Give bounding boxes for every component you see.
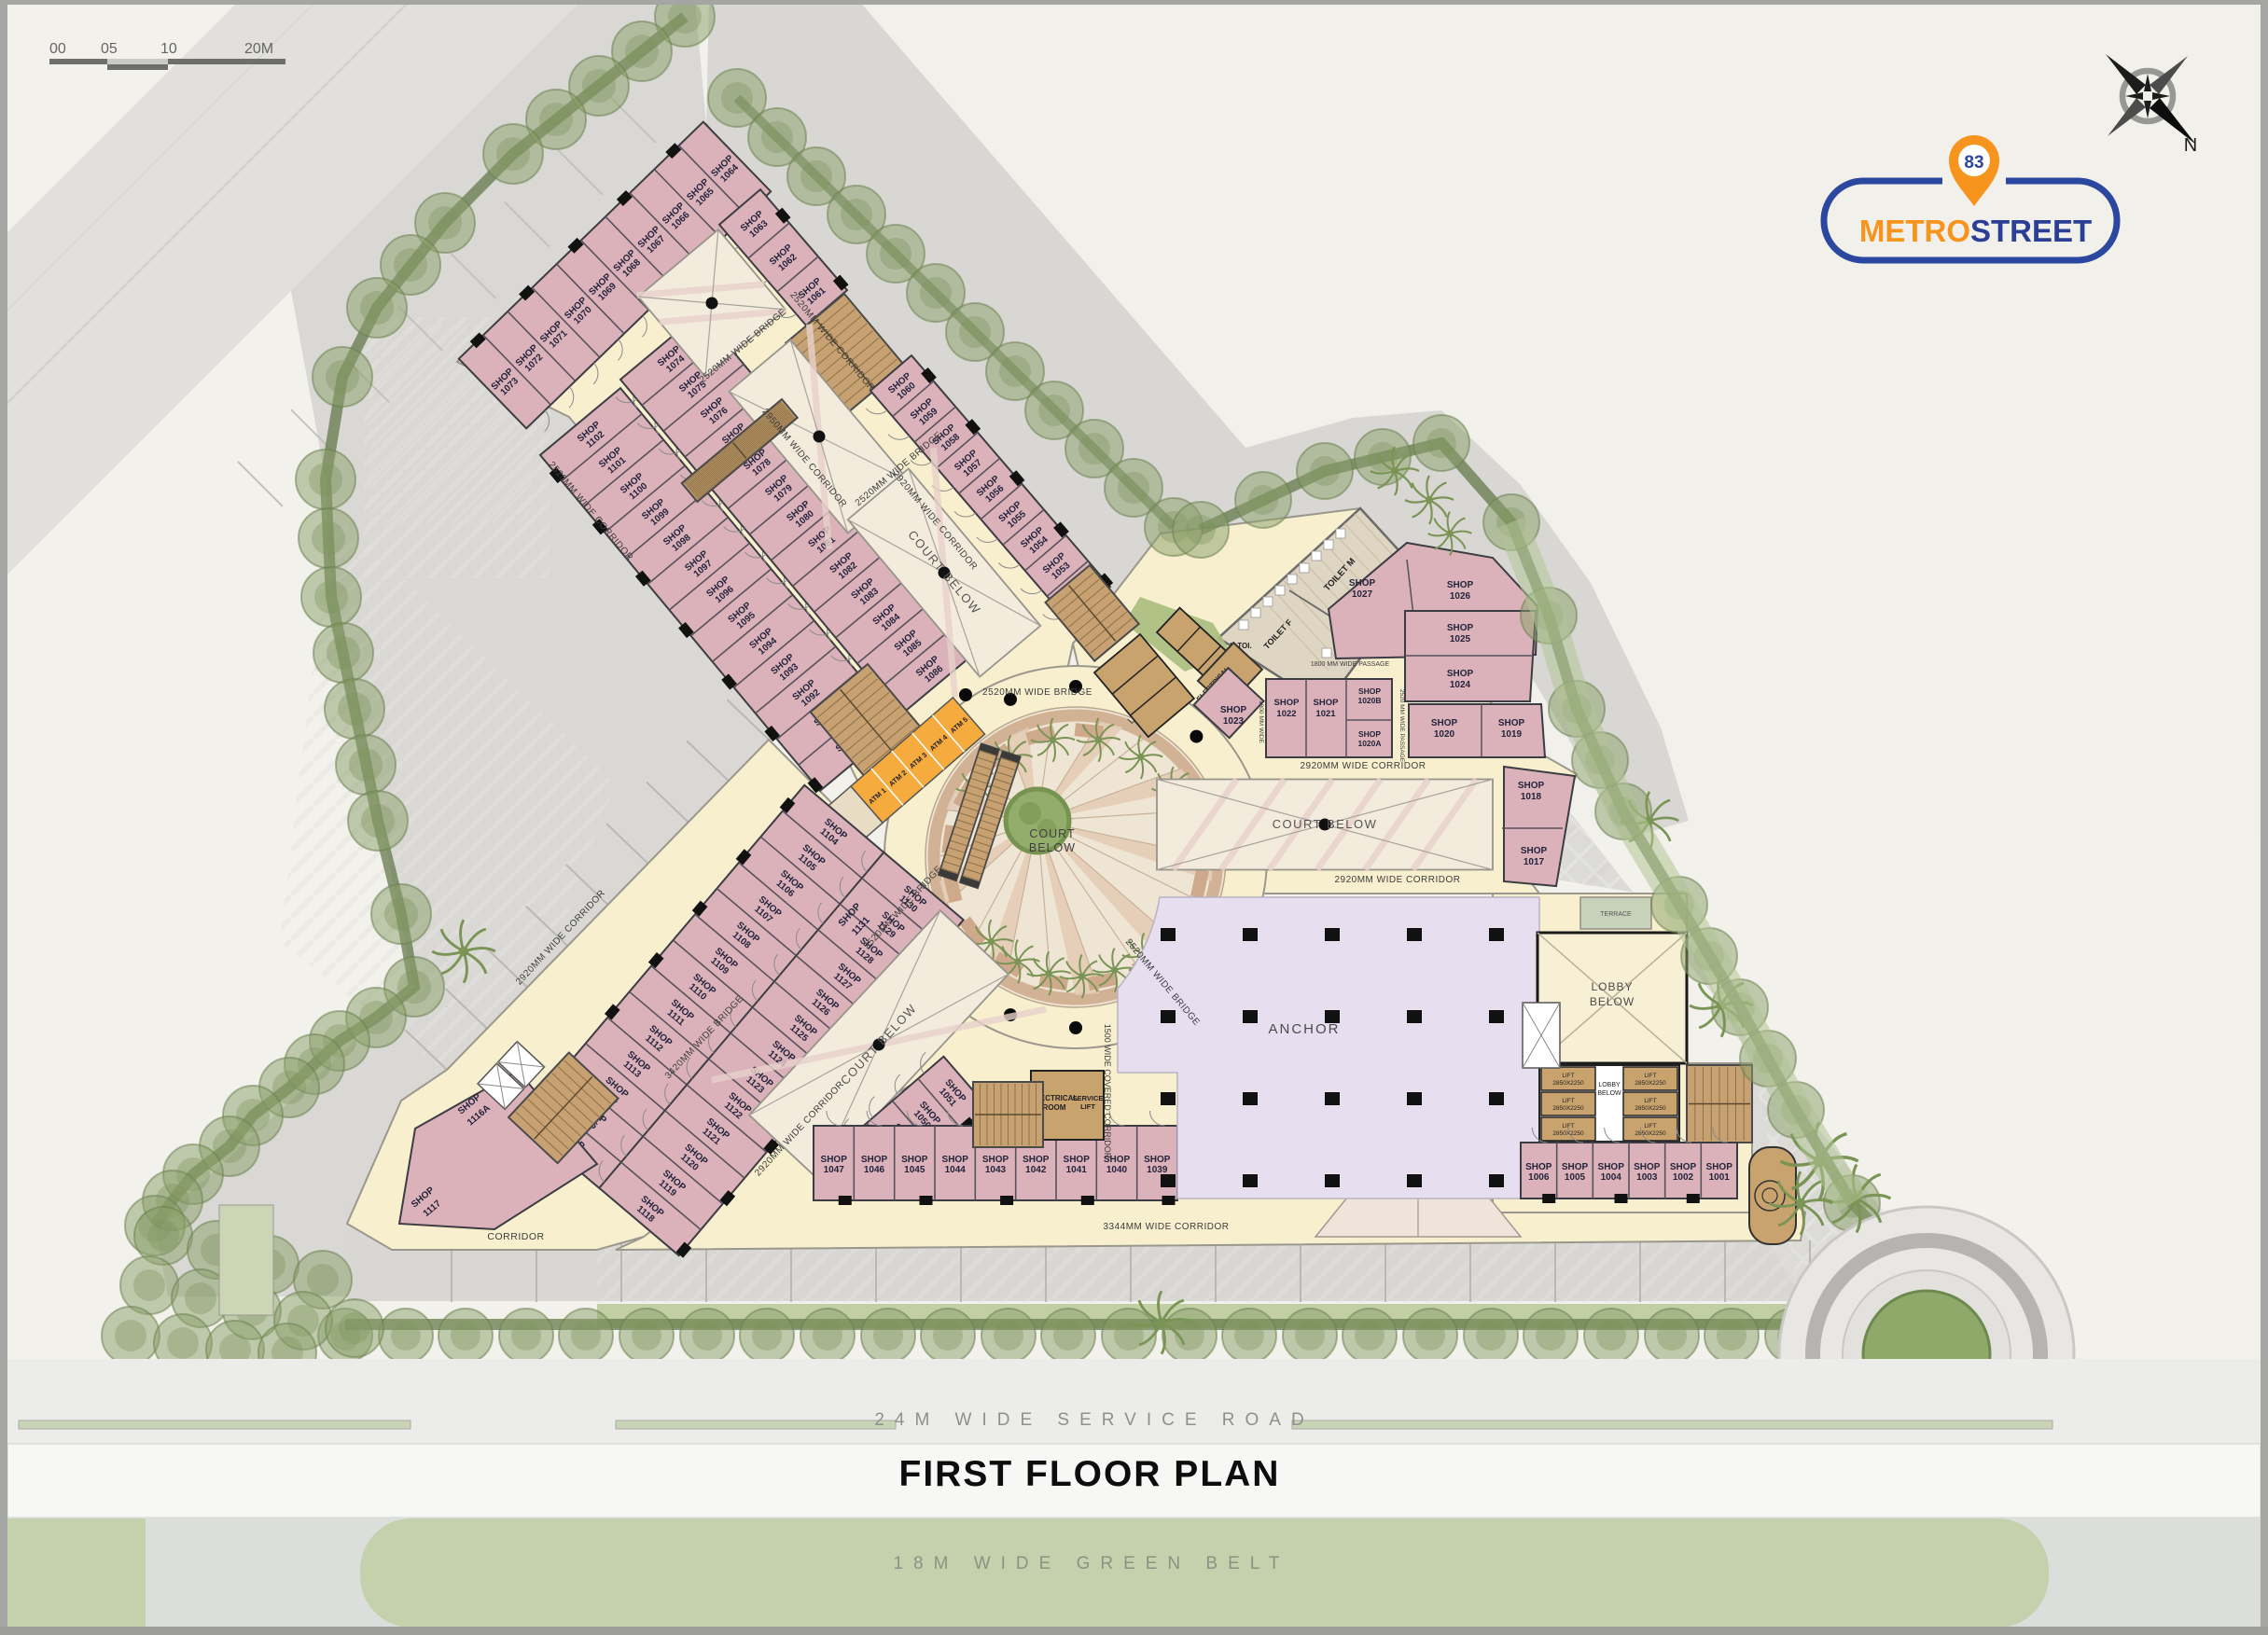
svg-text:LOBBY: LOBBY (1598, 1082, 1621, 1088)
svg-text:ROOM: ROOM (1043, 1103, 1066, 1112)
svg-text:BELOW: BELOW (1597, 1090, 1621, 1097)
svg-text:SHOP: SHOP (1447, 669, 1474, 679)
svg-text:1003: 1003 (1636, 1172, 1658, 1183)
svg-text:1025: 1025 (1450, 634, 1471, 644)
svg-text:1040: 1040 (1106, 1165, 1128, 1175)
svg-text:SHOP: SHOP (1598, 1162, 1625, 1172)
svg-text:83: 83 (1964, 153, 1983, 173)
svg-text:SHOP: SHOP (1431, 718, 1458, 728)
svg-text:1800 MM WIDE PASSAGE: 1800 MM WIDE PASSAGE (1311, 661, 1390, 668)
svg-text:COURT: COURT (1029, 827, 1075, 840)
svg-text:SHOP: SHOP (1525, 1162, 1552, 1172)
svg-text:STREET: STREET (1970, 214, 2092, 248)
svg-text:1024: 1024 (1450, 680, 1471, 690)
svg-text:00: 00 (49, 41, 66, 57)
svg-text:SHOP: SHOP (1447, 580, 1474, 590)
svg-text:3344MM WIDE CORRIDOR: 3344MM WIDE CORRIDOR (1103, 1222, 1229, 1232)
svg-text:SHOP: SHOP (1521, 846, 1548, 856)
svg-text:1041: 1041 (1066, 1165, 1088, 1175)
svg-text:CORRIDOR: CORRIDOR (487, 1231, 544, 1242)
svg-text:2850X2250: 2850X2250 (1635, 1080, 1666, 1087)
svg-text:SHOP: SHOP (1023, 1155, 1050, 1165)
svg-text:1044: 1044 (945, 1165, 967, 1175)
svg-text:1006: 1006 (1528, 1172, 1550, 1183)
svg-text:FIRST FLOOR PLAN: FIRST FLOOR PLAN (899, 1454, 1281, 1494)
svg-text:1500 WIDE COVERED CORRIDOR: 1500 WIDE COVERED CORRIDOR (1103, 1024, 1112, 1159)
svg-text:SHOP: SHOP (1220, 705, 1247, 715)
svg-text:1022: 1022 (1276, 709, 1296, 719)
svg-text:N: N (2184, 135, 2197, 156)
svg-text:24M WIDE SERVICE ROAD: 24M WIDE SERVICE ROAD (874, 1410, 1314, 1430)
svg-text:BELOW: BELOW (1590, 995, 1635, 1008)
svg-text:1004: 1004 (1601, 1172, 1622, 1183)
svg-text:1018: 1018 (1521, 792, 1542, 802)
svg-text:SHOP: SHOP (1706, 1162, 1733, 1172)
svg-text:LIFT: LIFT (1644, 1073, 1656, 1079)
svg-text:1043: 1043 (985, 1165, 1007, 1175)
svg-text:SHOP: SHOP (1274, 698, 1301, 708)
svg-text:1042: 1042 (1025, 1165, 1047, 1175)
svg-text:TERRACE: TERRACE (1600, 911, 1632, 918)
svg-text:SHOP: SHOP (1498, 718, 1525, 728)
svg-text:1023: 1023 (1223, 716, 1245, 727)
svg-text:1020: 1020 (1434, 729, 1455, 740)
svg-text:SHOP: SHOP (861, 1155, 888, 1165)
svg-text:BELOW: BELOW (1029, 841, 1076, 854)
svg-text:SHOP: SHOP (1314, 698, 1340, 708)
svg-text:LOBBY: LOBBY (1591, 980, 1633, 993)
svg-text:SHOP: SHOP (821, 1155, 848, 1165)
svg-text:LIFT: LIFT (1080, 1102, 1095, 1111)
svg-text:2920MM WIDE CORRIDOR: 2920MM WIDE CORRIDOR (1334, 875, 1460, 885)
svg-text:2520MM WIDE BRIDGE: 2520MM WIDE BRIDGE (982, 687, 1092, 698)
svg-text:1039: 1039 (1147, 1165, 1168, 1175)
svg-text:20M: 20M (244, 41, 273, 57)
svg-text:2850X2250: 2850X2250 (1552, 1105, 1584, 1112)
svg-text:10: 10 (160, 41, 177, 57)
svg-text:18M WIDE GREEN BELT: 18M WIDE GREEN BELT (893, 1554, 1289, 1573)
svg-text:SHOP: SHOP (901, 1155, 928, 1165)
svg-text:SHOP: SHOP (1349, 578, 1376, 589)
svg-text:1020A: 1020A (1357, 739, 1381, 748)
svg-text:SHOP: SHOP (1144, 1155, 1171, 1165)
svg-text:SHOP: SHOP (1518, 781, 1545, 791)
svg-text:SHOP: SHOP (1670, 1162, 1697, 1172)
svg-text:1021: 1021 (1315, 709, 1336, 719)
svg-text:1017: 1017 (1524, 857, 1545, 867)
svg-text:2850X2250: 2850X2250 (1552, 1080, 1584, 1087)
svg-text:LIFT: LIFT (1562, 1073, 1574, 1079)
svg-text:SHOP: SHOP (1562, 1162, 1589, 1172)
svg-text:1005: 1005 (1565, 1172, 1586, 1183)
svg-text:05: 05 (101, 41, 118, 57)
svg-text:2920MM WIDE CORRIDOR: 2920MM WIDE CORRIDOR (1300, 761, 1426, 771)
svg-text:1020B: 1020B (1357, 696, 1381, 705)
svg-text:2520 MM WIDE PASSAGE: 2520 MM WIDE PASSAGE (1398, 689, 1405, 763)
svg-text:1019: 1019 (1501, 729, 1523, 740)
svg-text:1026: 1026 (1450, 591, 1471, 602)
svg-text:SHOP: SHOP (942, 1155, 969, 1165)
svg-text:SHOP: SHOP (1064, 1155, 1091, 1165)
svg-text:LIFT: LIFT (1644, 1098, 1656, 1104)
svg-text:SHOP: SHOP (1358, 729, 1381, 739)
svg-text:1800 MM WIDE: 1800 MM WIDE (1258, 700, 1264, 744)
svg-text:SERVICE: SERVICE (1073, 1094, 1104, 1102)
svg-text:2850X2250: 2850X2250 (1635, 1130, 1666, 1137)
svg-text:SHOP: SHOP (1634, 1162, 1661, 1172)
svg-text:COURT BELOW: COURT BELOW (1273, 817, 1378, 831)
svg-text:SHOP: SHOP (1358, 686, 1381, 696)
svg-text:1027: 1027 (1352, 589, 1373, 600)
svg-text:ANCHOR: ANCHOR (1268, 1021, 1340, 1037)
svg-text:LIFT: LIFT (1644, 1123, 1656, 1129)
svg-text:METRO: METRO (1859, 214, 1970, 248)
svg-text:1001: 1001 (1709, 1172, 1731, 1183)
svg-text:1002: 1002 (1673, 1172, 1694, 1183)
svg-text:1046: 1046 (864, 1165, 885, 1175)
svg-text:2850X2250: 2850X2250 (1635, 1105, 1666, 1112)
svg-text:SHOP: SHOP (982, 1155, 1009, 1165)
svg-text:LIFT: LIFT (1562, 1098, 1574, 1104)
svg-text:1045: 1045 (904, 1165, 925, 1175)
svg-text:SHOP: SHOP (1447, 623, 1474, 633)
svg-text:1047: 1047 (824, 1165, 845, 1175)
